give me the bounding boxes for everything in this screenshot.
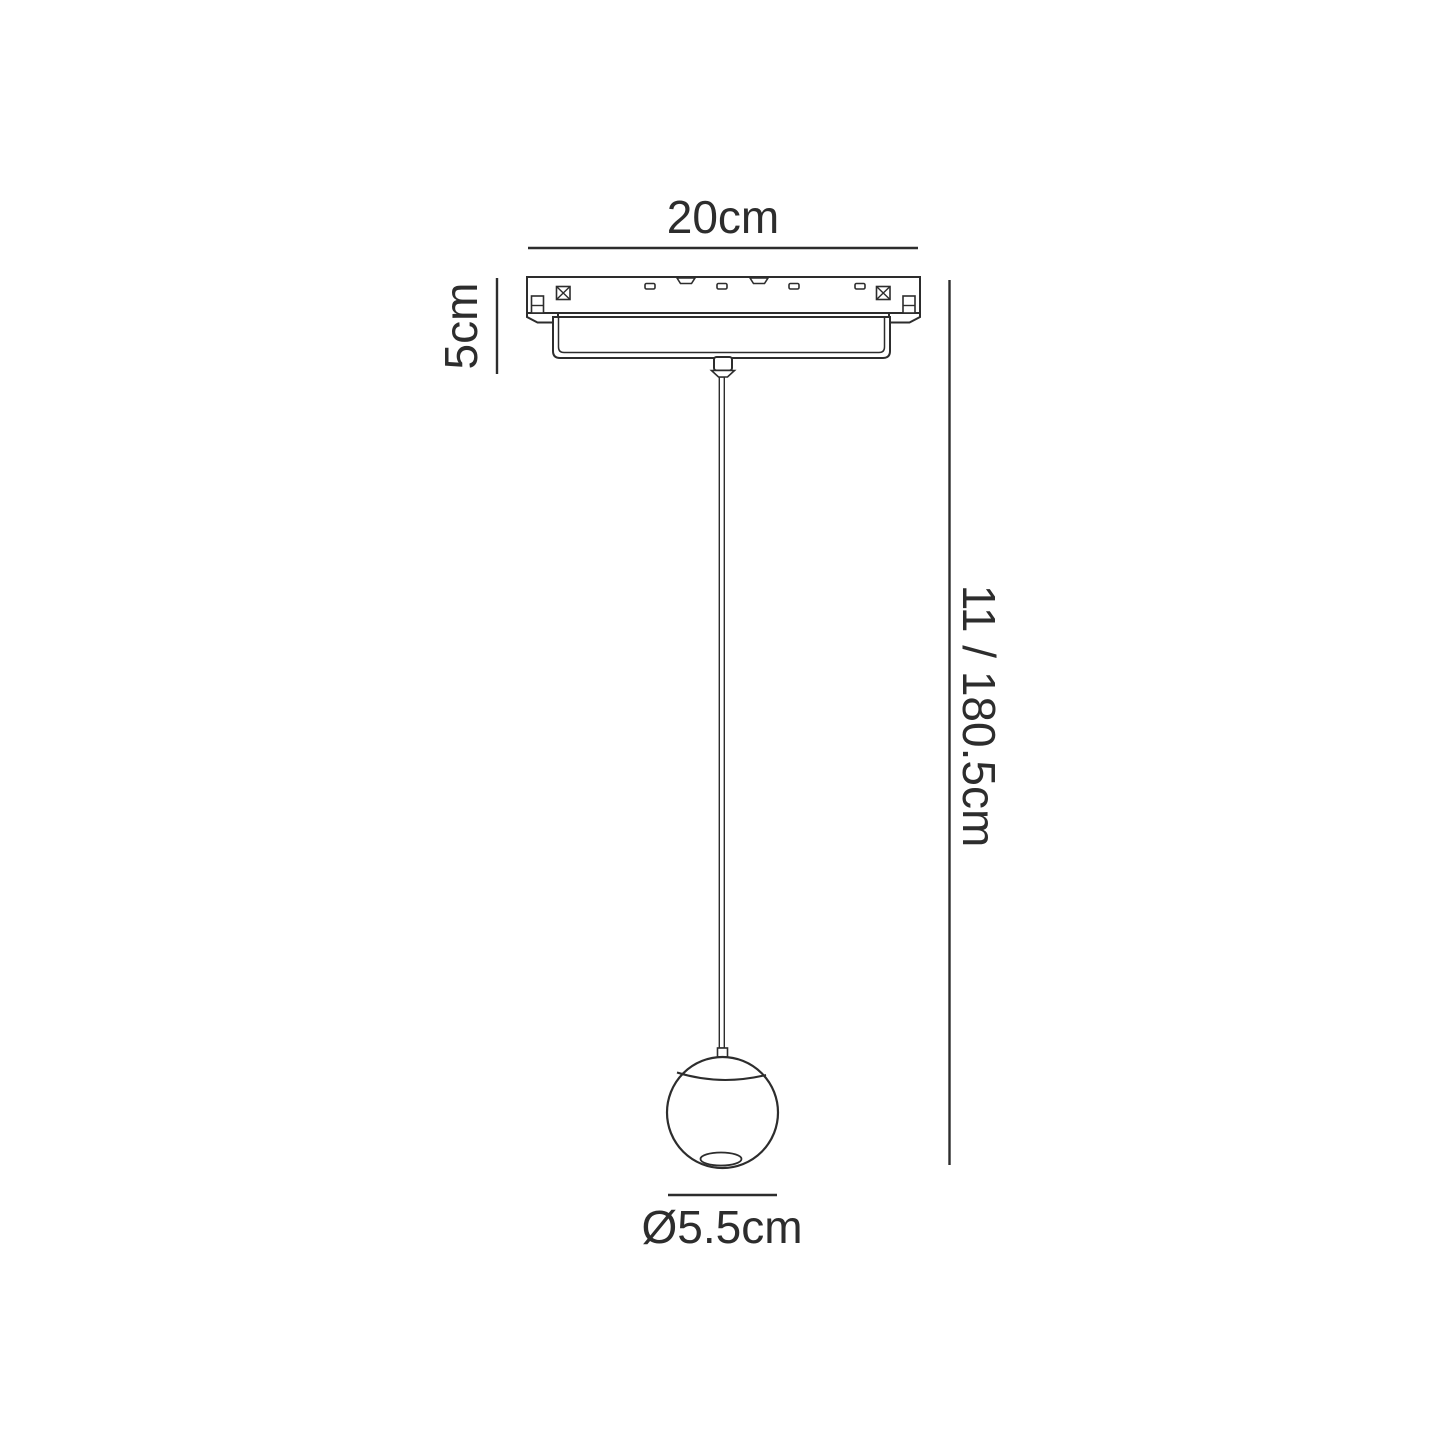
track-notch-1 — [677, 278, 695, 284]
cable-gland-flange — [712, 371, 735, 378]
suspension-cable — [719, 377, 724, 1048]
track-clip-right — [903, 296, 915, 313]
width-dimension-label: 20cm — [667, 191, 779, 243]
track-notch-2 — [750, 278, 768, 284]
height-dimension-label: 5cm — [435, 283, 487, 370]
cable-gland — [714, 357, 732, 371]
sphere-bottom-opening — [701, 1153, 742, 1166]
track-body — [527, 277, 920, 313]
pendant-dimension-diagram: 20cm 5cm 11 / 180.5cm Ø5.5cm — [0, 0, 1445, 1445]
track-slot-4 — [855, 284, 865, 290]
cable-connector — [718, 1048, 728, 1057]
track-right-tab — [889, 313, 920, 323]
track-slot-2 — [717, 284, 727, 290]
drop-dimension-label: 11 / 180.5cm — [953, 585, 1005, 848]
track-clip-left — [532, 296, 544, 313]
diameter-dimension-label: Ø5.5cm — [641, 1201, 802, 1253]
diagram-canvas: 20cm 5cm 11 / 180.5cm Ø5.5cm — [0, 0, 1445, 1445]
track-slot-3 — [789, 284, 799, 290]
track-slot-1 — [645, 284, 655, 290]
